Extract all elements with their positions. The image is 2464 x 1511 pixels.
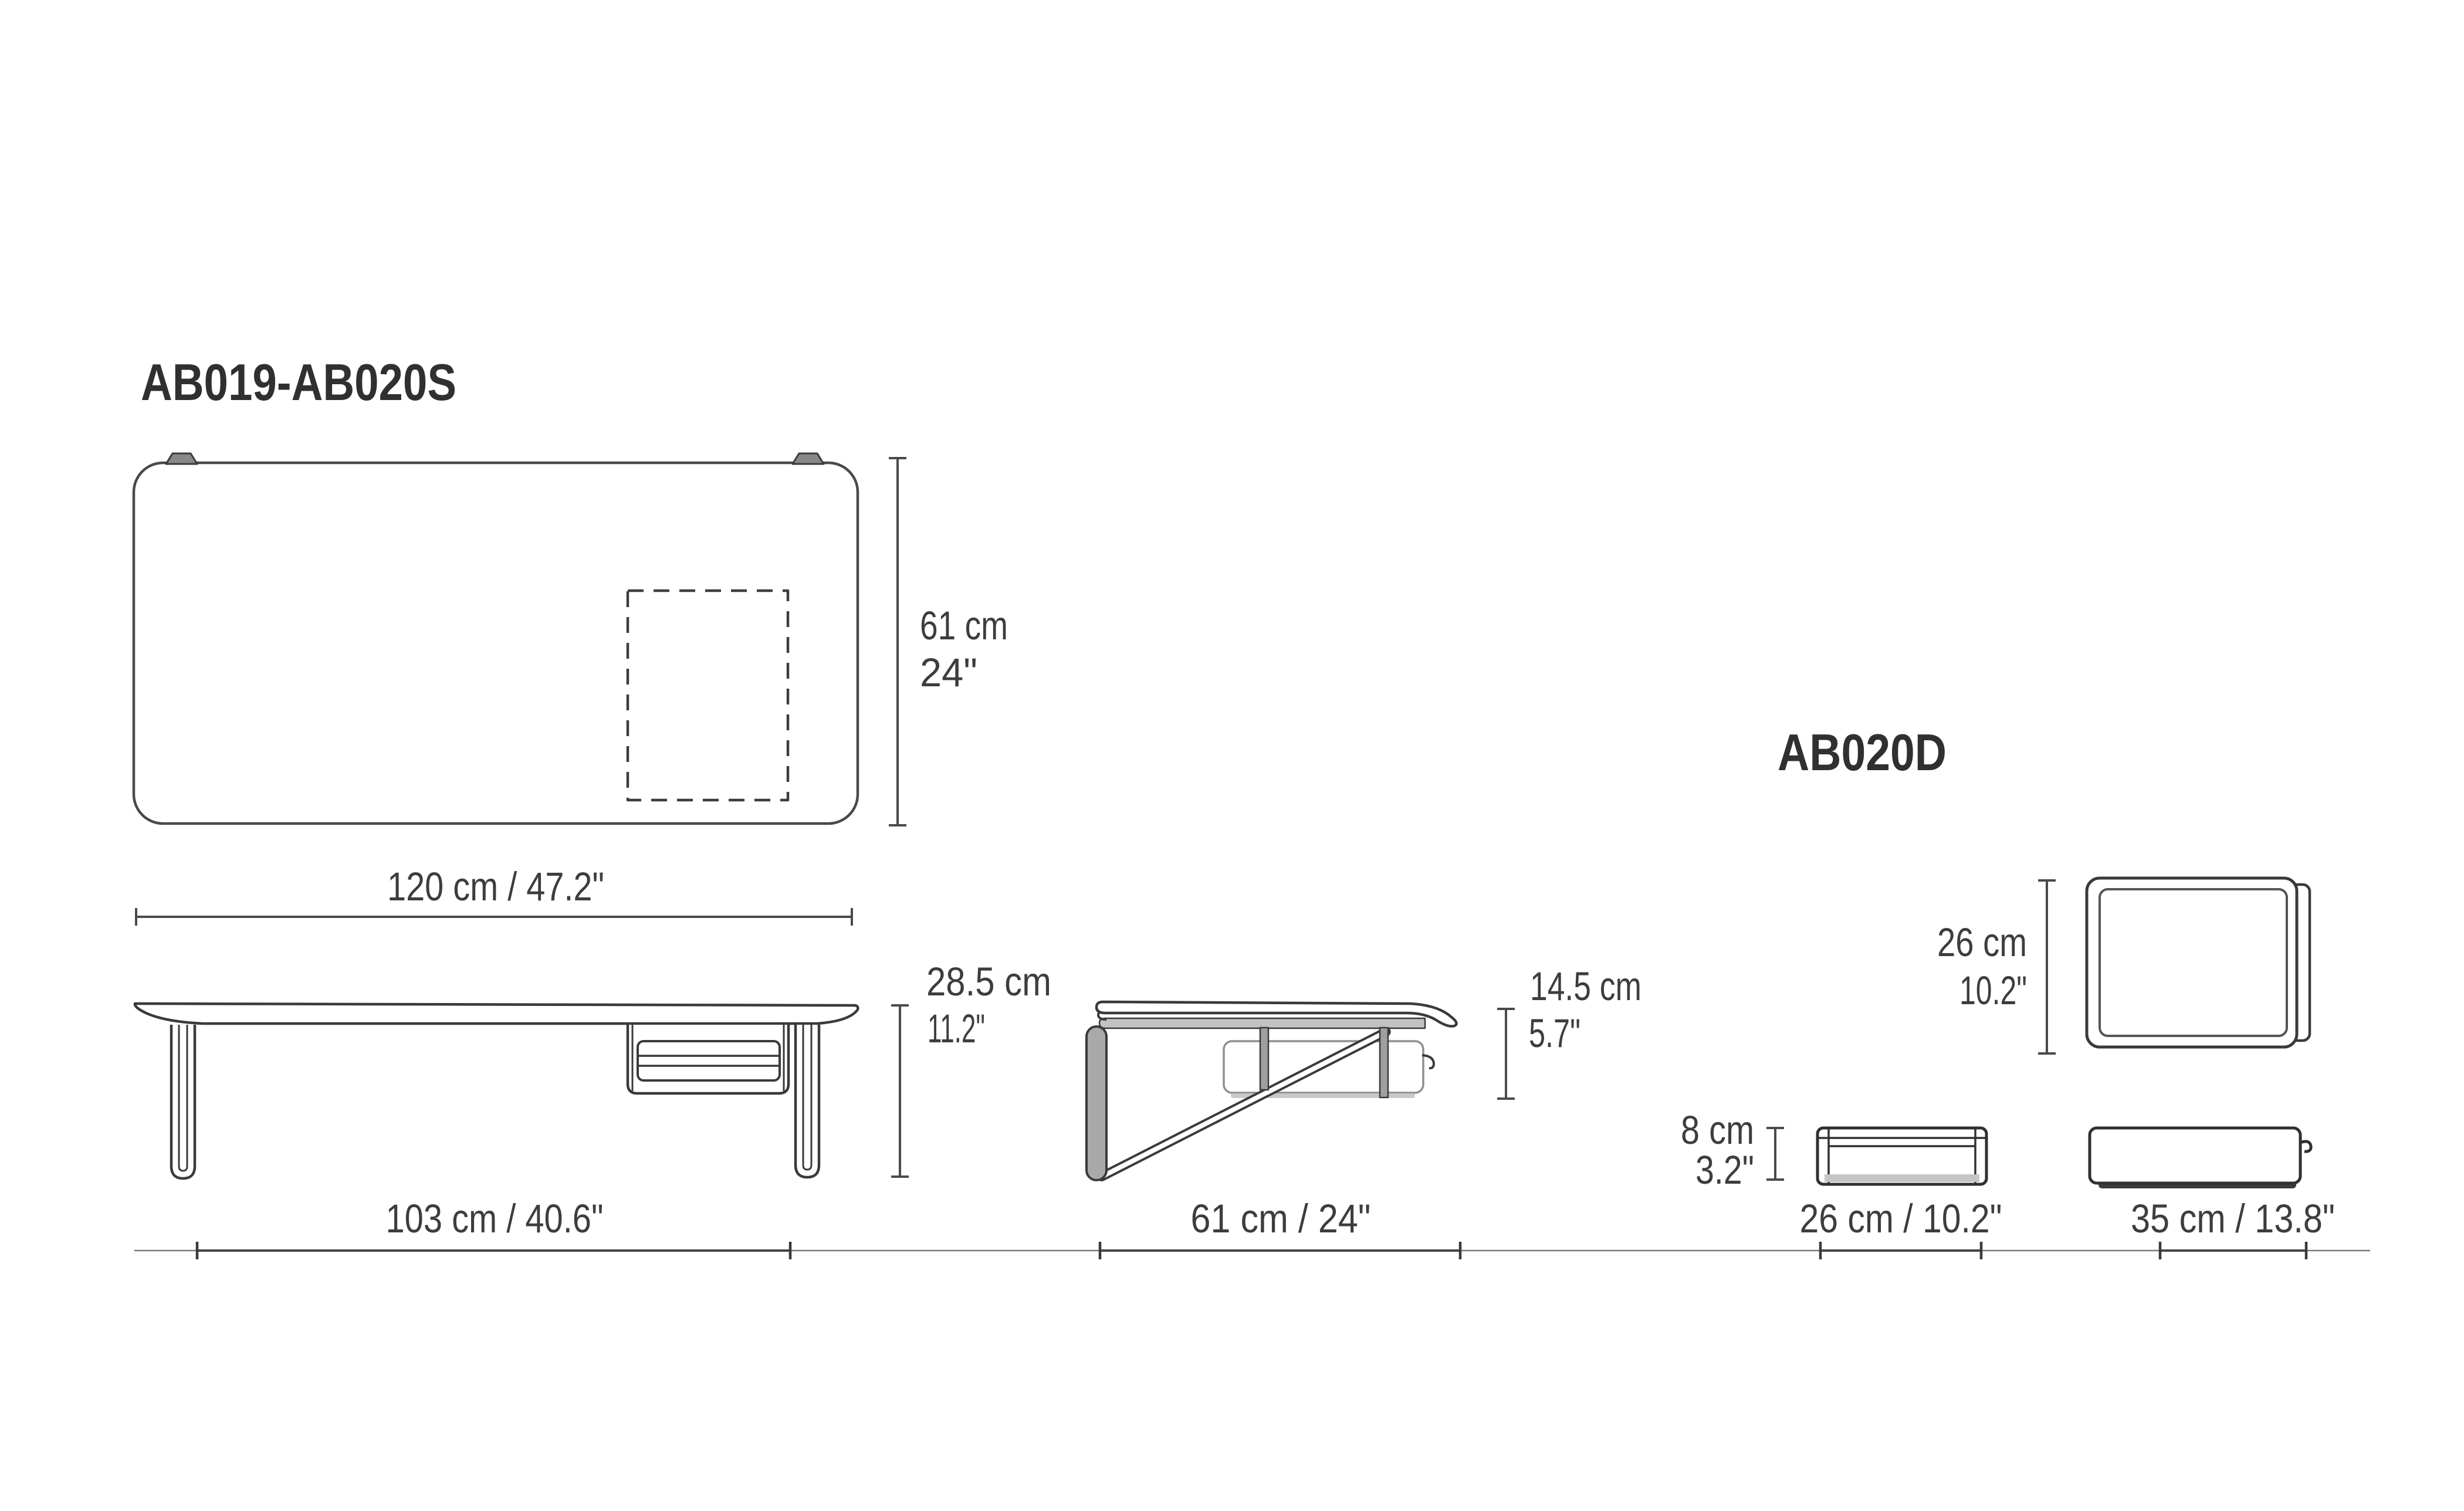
svg-text:AB019-AB020S: AB019-AB020S — [141, 353, 456, 411]
svg-text:11.2": 11.2" — [928, 1006, 985, 1051]
svg-text:8 cm: 8 cm — [1681, 1107, 1754, 1153]
svg-text:24": 24" — [920, 650, 977, 695]
svg-text:103 cm / 40.6": 103 cm / 40.6" — [386, 1196, 604, 1241]
svg-text:3.2": 3.2" — [1695, 1147, 1754, 1192]
svg-text:61 cm: 61 cm — [920, 603, 1008, 648]
svg-text:26 cm: 26 cm — [1937, 920, 2027, 965]
svg-text:10.2": 10.2" — [1959, 968, 2027, 1013]
svg-text:61 cm / 24": 61 cm / 24" — [1191, 1196, 1371, 1241]
svg-text:5.7": 5.7" — [1529, 1011, 1580, 1056]
svg-text:35 cm / 13.8": 35 cm / 13.8" — [2131, 1196, 2335, 1241]
svg-text:120 cm / 47.2": 120 cm / 47.2" — [387, 864, 604, 909]
svg-text:26 cm / 10.2": 26 cm / 10.2" — [1800, 1196, 2002, 1241]
svg-text:28.5 cm: 28.5 cm — [926, 959, 1051, 1004]
svg-text:AB020D: AB020D — [1778, 723, 1947, 781]
svg-text:14.5 cm: 14.5 cm — [1530, 964, 1641, 1009]
